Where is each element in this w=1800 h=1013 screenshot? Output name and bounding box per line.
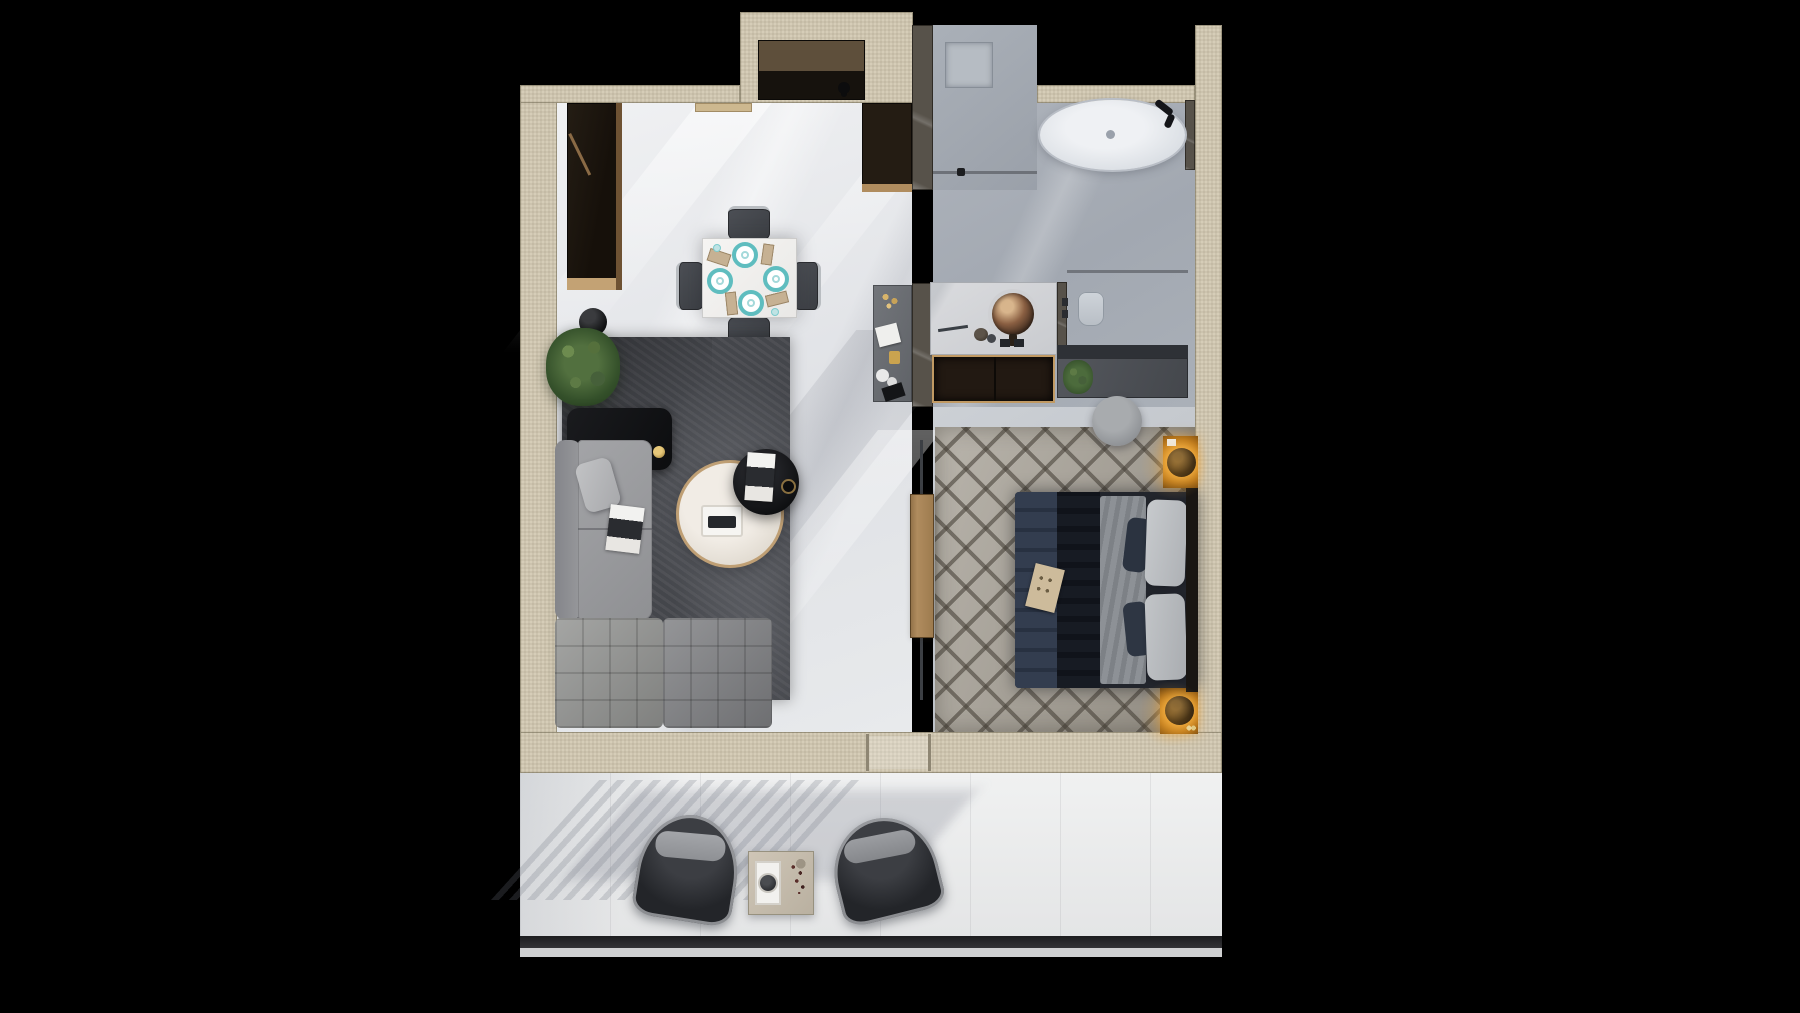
counter-amenity xyxy=(1014,339,1024,347)
teal-dot-decor xyxy=(771,308,779,316)
plate-north xyxy=(732,242,758,268)
soap-dish xyxy=(987,334,996,343)
bathtub xyxy=(1040,100,1185,170)
dining-chair-north xyxy=(728,206,770,240)
storage-counter-ledge xyxy=(1057,345,1188,358)
wall-top-left xyxy=(520,85,740,103)
counter-amenity xyxy=(1000,339,1010,347)
teal-dot-decor xyxy=(713,244,721,252)
remote-item xyxy=(708,516,736,528)
wardrobe-wood-base xyxy=(567,278,622,290)
tub-drain-icon xyxy=(1106,130,1115,139)
shower-drain-plate xyxy=(945,42,993,88)
white-card xyxy=(875,323,901,348)
balcony-railing xyxy=(520,936,1222,948)
cabinet-divider xyxy=(994,357,996,401)
jewelry-items xyxy=(879,291,901,311)
round-pouf xyxy=(1092,396,1142,446)
plate-south xyxy=(738,290,764,316)
sphere-lamp xyxy=(1165,696,1194,725)
vanity-cabinet xyxy=(932,355,1055,403)
entry-door-threshold xyxy=(695,103,752,112)
marble-pillar-tub-end xyxy=(1185,100,1195,170)
double-bed xyxy=(1015,492,1198,688)
magazine-on-table xyxy=(744,452,775,502)
wardrobe-trim xyxy=(568,133,591,176)
black-box xyxy=(881,382,905,402)
balcony-door-panel xyxy=(869,736,928,769)
tub-faucet-icon xyxy=(1163,113,1175,129)
black-side-table xyxy=(733,449,799,515)
wall-right xyxy=(1195,25,1222,773)
sofa-chaise-right xyxy=(663,618,772,728)
balcony-edge-strip xyxy=(520,948,1222,957)
nightstand-top xyxy=(1163,436,1198,488)
entry-closet xyxy=(758,40,865,100)
headboard xyxy=(1186,488,1198,692)
sphere-lamp xyxy=(1167,448,1196,477)
vessel-sink xyxy=(992,293,1034,335)
plate-west xyxy=(707,268,733,294)
wardrobe-side-panel xyxy=(616,103,622,290)
roof-notch xyxy=(1037,0,1195,85)
floor-plan-render xyxy=(0,0,1800,1013)
shoe-cabinet-wood-base xyxy=(862,184,912,192)
napkin-tray xyxy=(725,291,738,315)
soap-dish xyxy=(974,328,988,341)
magazine-on-sofa xyxy=(605,504,644,554)
perfume-bottle xyxy=(889,351,900,364)
sofa-chaise-left xyxy=(555,618,663,728)
chair-pillow xyxy=(654,830,726,862)
flower-sprig xyxy=(786,859,810,899)
marble-pillar-shower xyxy=(912,25,933,190)
potted-plant xyxy=(546,328,620,406)
dressing-desk xyxy=(873,285,912,402)
nightstand-item xyxy=(1167,439,1176,446)
coffee-pot xyxy=(760,875,776,891)
flush-buttons-icon xyxy=(1062,298,1068,318)
wardrobe xyxy=(567,103,622,290)
balcony-door-frame xyxy=(928,734,931,771)
gold-items xyxy=(1186,724,1196,732)
storage-counter xyxy=(1057,358,1188,398)
dining-table xyxy=(702,238,797,318)
dining-chair-east xyxy=(793,262,821,310)
napkin-tray xyxy=(761,243,775,265)
dark-runner-band xyxy=(1057,492,1100,688)
nightstand-bottom xyxy=(1160,688,1198,734)
bed-pillow xyxy=(1145,593,1188,680)
sliding-wood-door xyxy=(910,494,934,638)
gold-ring-tray xyxy=(781,479,796,494)
stone-side-table xyxy=(748,851,814,915)
wall-left xyxy=(520,85,557,773)
plate-east xyxy=(763,266,789,292)
shoe-cabinet xyxy=(862,103,912,192)
shower-glass-line xyxy=(933,171,1037,174)
serving-tray xyxy=(701,505,743,537)
toilet xyxy=(1078,292,1104,326)
toilet-glass-line xyxy=(1067,270,1188,273)
bed-pillow xyxy=(1145,499,1188,586)
vanity-counter xyxy=(930,282,1057,355)
glass-handle-icon xyxy=(957,168,965,176)
chair-pillow xyxy=(842,828,917,865)
plant-small xyxy=(1063,360,1093,394)
closet-knob-icon xyxy=(838,82,850,94)
dining-chair-west xyxy=(676,262,704,310)
napkin-tray xyxy=(765,291,789,308)
candle xyxy=(653,446,665,458)
razor-item xyxy=(938,325,968,332)
coffee-pot-tray xyxy=(755,861,781,905)
